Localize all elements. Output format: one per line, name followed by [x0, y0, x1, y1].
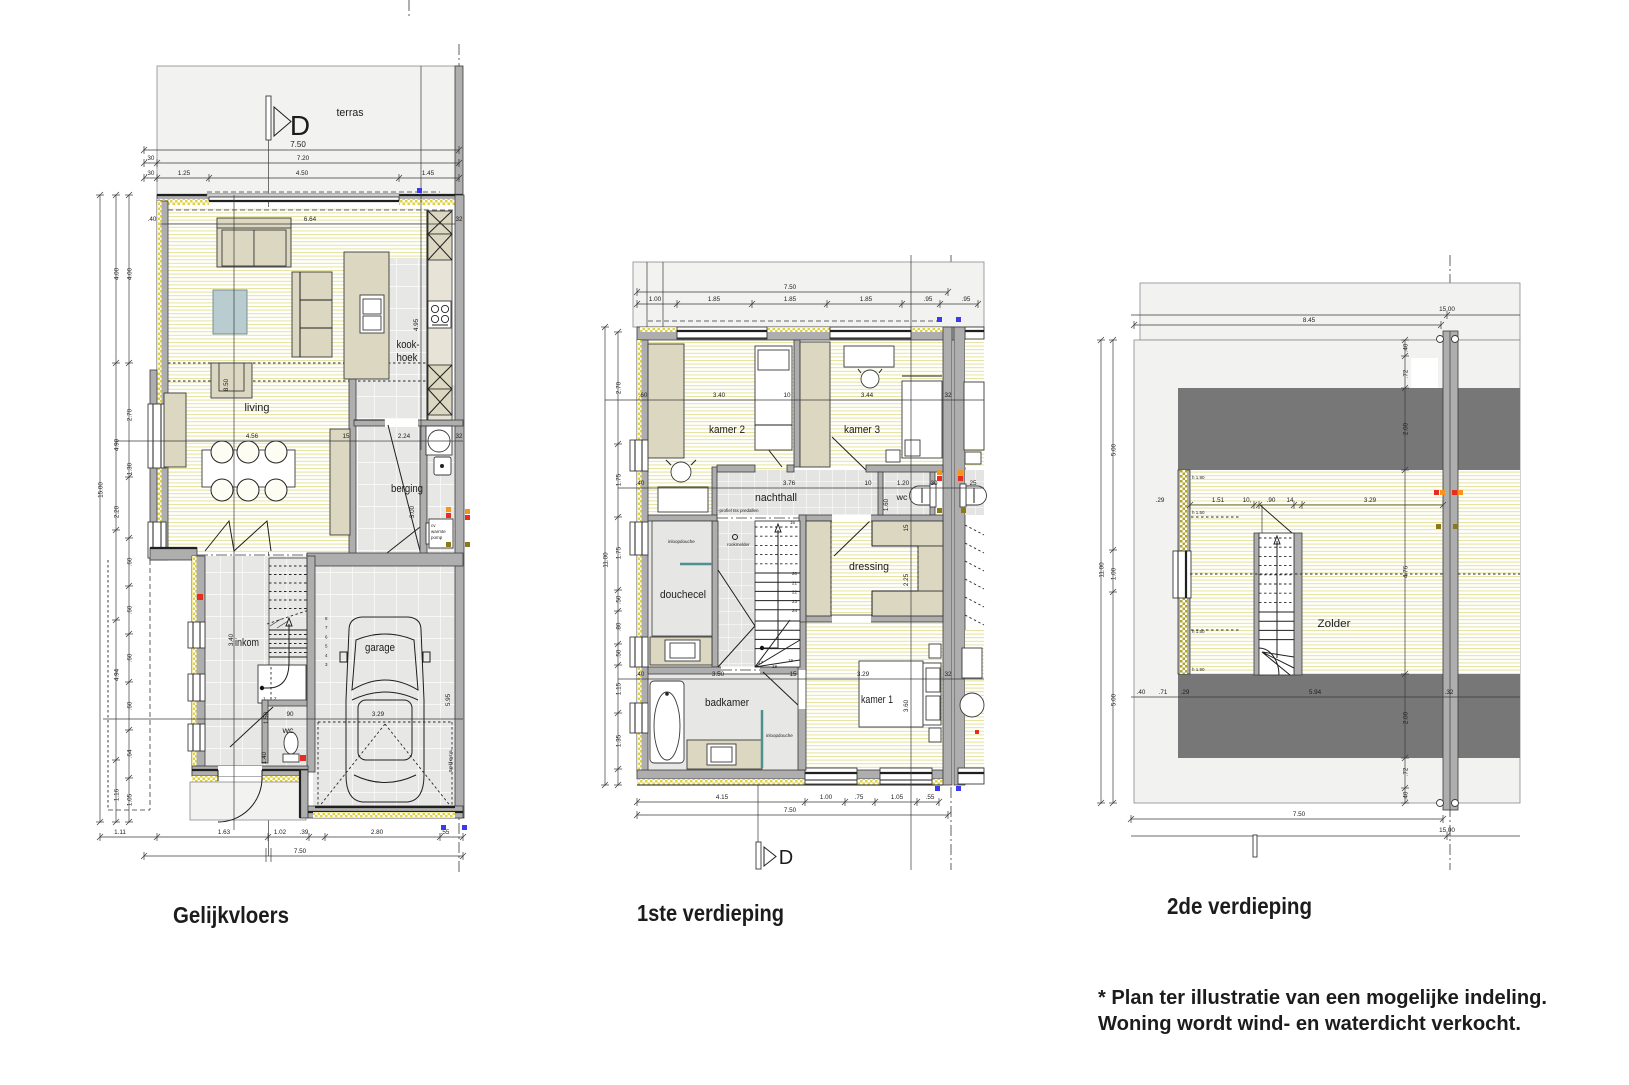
svg-text:1.05: 1.05	[127, 793, 134, 806]
svg-text:badkamer: badkamer	[705, 697, 749, 709]
svg-text:3.76: 3.76	[783, 480, 796, 487]
svg-text:4.00: 4.00	[127, 267, 134, 280]
svg-text:25: 25	[969, 480, 977, 487]
svg-text:2.70: 2.70	[616, 381, 623, 394]
svg-text:garage: garage	[365, 642, 395, 654]
svg-text:.90: .90	[1267, 497, 1276, 504]
svg-text:3.40: 3.40	[713, 392, 726, 399]
svg-text:1.16: 1.16	[114, 788, 121, 801]
svg-text:11.00: 11.00	[1099, 562, 1106, 578]
svg-text:hoek: hoek	[397, 352, 418, 364]
svg-text:1.20: 1.20	[897, 480, 910, 487]
svg-text:15: 15	[342, 433, 350, 440]
svg-text:3.29: 3.29	[372, 711, 385, 718]
svg-text:2.25: 2.25	[903, 573, 910, 586]
svg-text:2.00: 2.00	[1403, 422, 1410, 435]
svg-text:1.00: 1.00	[649, 296, 662, 303]
svg-text:.39: .39	[300, 829, 309, 836]
svg-text:.55: .55	[926, 794, 935, 801]
svg-text:2.20: 2.20	[114, 505, 121, 518]
svg-text:15: 15	[789, 671, 797, 678]
svg-text:.32: .32	[1445, 689, 1454, 696]
svg-text:3.44: 3.44	[861, 392, 874, 399]
svg-text:8.45: 8.45	[1303, 317, 1316, 324]
svg-text:32: 32	[455, 433, 463, 440]
svg-text:.50: .50	[616, 649, 623, 658]
svg-text:3.29: 3.29	[1364, 497, 1377, 504]
svg-text:1.00: 1.00	[1111, 567, 1118, 580]
svg-text:h 1.50: h 1.50	[1192, 510, 1205, 515]
svg-text:.40: .40	[1137, 689, 1146, 696]
svg-text:Woning wordt wind- en waterdic: Woning wordt wind- en waterdicht verkoch…	[1098, 1013, 1521, 1035]
svg-text:1.75: 1.75	[616, 473, 623, 486]
svg-text:kamer 1: kamer 1	[861, 694, 893, 706]
svg-text:90: 90	[286, 711, 294, 718]
svg-text:22: 22	[792, 590, 798, 595]
svg-text:Zolder: Zolder	[1318, 618, 1351, 630]
svg-text:douchecel: douchecel	[660, 589, 706, 601]
svg-text:D: D	[779, 847, 793, 869]
svg-text:.64: .64	[127, 749, 134, 758]
svg-text:1.00: 1.00	[820, 794, 833, 801]
svg-text:1.50: 1.50	[263, 711, 270, 724]
svg-text:h 1.90: h 1.90	[1192, 475, 1205, 480]
svg-text:1.60: 1.60	[883, 498, 890, 511]
svg-text:2.00: 2.00	[1403, 711, 1410, 724]
svg-text:.50: .50	[616, 595, 623, 604]
svg-text:3.00: 3.00	[409, 505, 416, 518]
svg-text:kamer 2: kamer 2	[709, 424, 745, 436]
svg-text:.60: .60	[639, 392, 648, 399]
svg-text:.60: .60	[127, 701, 134, 710]
svg-text:7.50: 7.50	[294, 848, 307, 855]
svg-text:4.95: 4.95	[413, 318, 420, 331]
svg-text:.40: .40	[148, 216, 157, 223]
svg-text:8.50: 8.50	[223, 378, 230, 391]
svg-text:4.90: 4.90	[114, 438, 121, 451]
svg-text:17: 17	[758, 660, 764, 665]
svg-text:1.02: 1.02	[274, 829, 287, 836]
svg-text:kook-: kook-	[397, 339, 420, 351]
svg-text:7.50: 7.50	[784, 284, 797, 291]
svg-text:1.11: 1.11	[114, 829, 126, 836]
svg-text:.72: .72	[1403, 767, 1410, 776]
svg-text:30: 30	[930, 480, 938, 487]
svg-text:21: 21	[792, 580, 798, 585]
svg-text:4.00: 4.00	[114, 267, 121, 280]
svg-text:1.05: 1.05	[891, 794, 904, 801]
svg-text:* Plan ter illustratie van een: * Plan ter illustratie van een mogelijke…	[1098, 987, 1547, 1009]
svg-text:4.56: 4.56	[246, 433, 259, 440]
svg-text:.40: .40	[636, 480, 645, 487]
svg-text:1.51: 1.51	[1212, 497, 1225, 504]
svg-text:.55: .55	[441, 829, 450, 836]
svg-text:5.94: 5.94	[1309, 689, 1322, 696]
svg-text:inloopdouche: inloopdouche	[668, 539, 695, 544]
svg-text:4.15: 4.15	[716, 794, 729, 801]
svg-text:Gelijkvloers: Gelijkvloers	[173, 902, 289, 928]
svg-text:16: 16	[790, 520, 796, 525]
svg-text:.40: .40	[636, 671, 645, 678]
svg-text:.75: .75	[855, 794, 864, 801]
svg-text:1.45: 1.45	[422, 170, 435, 177]
svg-text:4.76: 4.76	[1403, 565, 1410, 578]
svg-text:3.29: 3.29	[857, 671, 870, 678]
svg-text:1.35: 1.35	[616, 734, 623, 747]
svg-text:7.50: 7.50	[1293, 811, 1306, 818]
svg-text:.71: .71	[1159, 689, 1168, 696]
svg-text:10: 10	[864, 480, 872, 487]
svg-text:rookmelder: rookmelder	[727, 542, 750, 547]
svg-text:6.64: 6.64	[304, 216, 317, 223]
svg-text:24: 24	[792, 608, 798, 613]
svg-text:1ste verdieping: 1ste verdieping	[637, 900, 784, 926]
svg-text:14: 14	[1286, 497, 1294, 504]
svg-text:3.60: 3.60	[903, 699, 910, 712]
svg-text:32: 32	[944, 671, 952, 678]
svg-text:1.85: 1.85	[784, 296, 797, 303]
svg-text:19: 19	[788, 658, 794, 663]
svg-text:.60: .60	[127, 557, 134, 566]
svg-text:inloopdouche: inloopdouche	[766, 733, 793, 738]
svg-text:7.20: 7.20	[297, 155, 310, 162]
svg-text:kamer 3: kamer 3	[844, 424, 880, 436]
svg-text:.29: .29	[1181, 689, 1190, 696]
svg-text:D: D	[290, 110, 310, 141]
svg-text:20: 20	[792, 571, 798, 576]
svg-text:1.85: 1.85	[708, 296, 721, 303]
svg-text:1.40: 1.40	[261, 751, 268, 764]
svg-text:5.00: 5.00	[1111, 443, 1118, 456]
svg-text:-profiel tss predallen: -profiel tss predallen	[718, 508, 759, 513]
svg-text:18: 18	[772, 664, 778, 669]
svg-text:.40: .40	[1403, 791, 1410, 800]
svg-text:.80: .80	[616, 622, 623, 631]
svg-text:cv: cv	[431, 523, 436, 528]
svg-text:1.75: 1.75	[616, 546, 623, 559]
svg-text:.29: .29	[1156, 497, 1165, 504]
svg-text:dressing: dressing	[849, 561, 889, 573]
svg-text:7.50: 7.50	[290, 140, 306, 149]
svg-text:1.30: 1.30	[127, 462, 134, 475]
svg-text:nachthall: nachthall	[755, 492, 797, 504]
svg-text:.95: .95	[924, 296, 933, 303]
svg-text:32: 32	[455, 216, 463, 223]
svg-text:.40: .40	[1403, 343, 1410, 352]
svg-text:2.80: 2.80	[371, 829, 384, 836]
svg-text:wc: wc	[895, 493, 907, 502]
svg-text:3.50: 3.50	[712, 671, 725, 678]
svg-text:2.70: 2.70	[127, 408, 134, 421]
svg-text:warmte: warmte	[431, 529, 446, 534]
svg-text:23: 23	[792, 599, 798, 604]
svg-text:.95: .95	[962, 296, 971, 303]
svg-text:living: living	[245, 402, 270, 414]
svg-text:.60: .60	[127, 605, 134, 614]
svg-text:15.00: 15.00	[98, 482, 105, 498]
svg-text:4.94: 4.94	[114, 668, 121, 681]
svg-text:1.63: 1.63	[218, 829, 231, 836]
svg-text:5.95: 5.95	[445, 693, 452, 706]
svg-text:h 1.50: h 1.50	[1192, 629, 1205, 634]
svg-text:.30: .30	[146, 170, 155, 177]
svg-text:tellers: tellers	[448, 749, 453, 772]
svg-text:1.15: 1.15	[616, 682, 623, 695]
svg-text:7.50: 7.50	[784, 807, 797, 814]
svg-text:15: 15	[903, 524, 910, 532]
svg-text:5.00: 5.00	[1111, 693, 1118, 706]
svg-text:1.25: 1.25	[178, 170, 191, 177]
svg-text:32: 32	[944, 392, 952, 399]
svg-text:10,: 10,	[1243, 497, 1252, 504]
svg-text:2de verdieping: 2de verdieping	[1167, 893, 1312, 919]
svg-text:2.24: 2.24	[398, 433, 411, 440]
svg-text:berging: berging	[391, 483, 423, 495]
svg-text:.60: .60	[127, 653, 134, 662]
svg-text:terras: terras	[337, 107, 364, 119]
svg-text:.30: .30	[146, 155, 155, 162]
svg-text:wc: wc	[281, 726, 293, 735]
svg-text:h 1.90: h 1.90	[1192, 667, 1205, 672]
svg-text:10: 10	[783, 392, 791, 399]
svg-text:4.50: 4.50	[296, 170, 309, 177]
svg-text:pomp: pomp	[431, 535, 443, 540]
svg-text:1.85: 1.85	[860, 296, 873, 303]
svg-text:inkom: inkom	[235, 637, 259, 649]
svg-text:.72: .72	[1403, 369, 1410, 378]
svg-text:11.00: 11.00	[603, 552, 610, 568]
